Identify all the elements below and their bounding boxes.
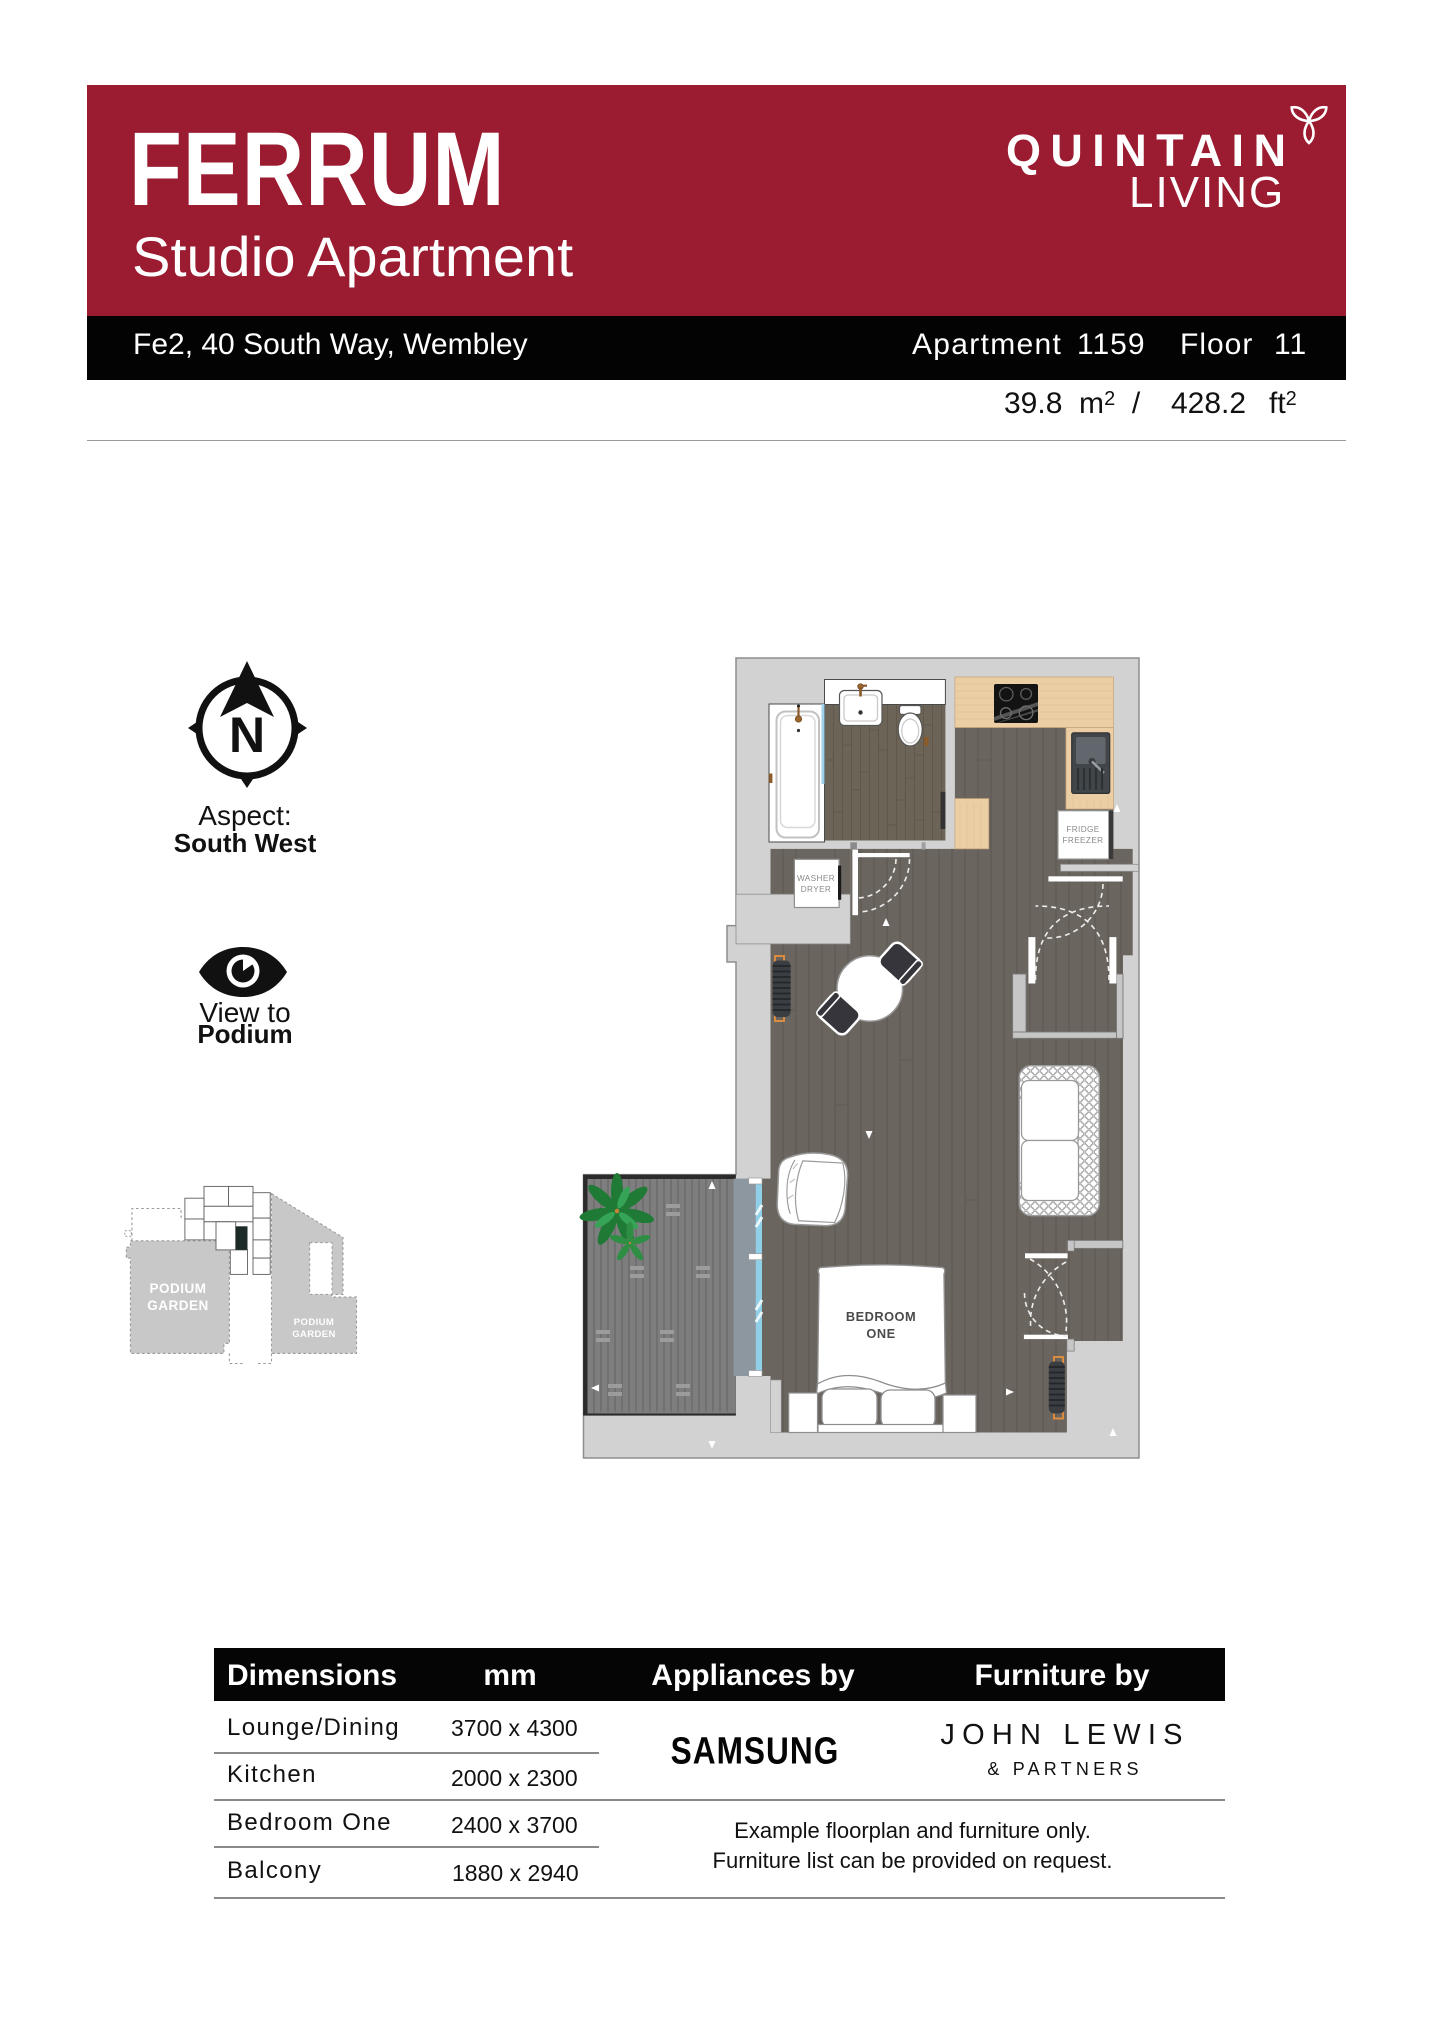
svg-text:PODIUM: PODIUM (294, 1317, 334, 1328)
svg-text:WASHER: WASHER (797, 874, 835, 883)
svg-text:DRYER: DRYER (801, 885, 832, 894)
svg-text:N: N (229, 707, 265, 763)
svg-text:BEDROOM: BEDROOM (846, 1309, 916, 1324)
svg-text:PODIUM: PODIUM (150, 1281, 207, 1296)
svg-text:ONE: ONE (866, 1326, 895, 1341)
svg-text:FREEZER: FREEZER (1062, 836, 1103, 845)
svg-text:FRIDGE: FRIDGE (1066, 825, 1099, 834)
svg-text:GARDEN: GARDEN (292, 1329, 336, 1340)
svg-text:GARDEN: GARDEN (147, 1298, 209, 1313)
